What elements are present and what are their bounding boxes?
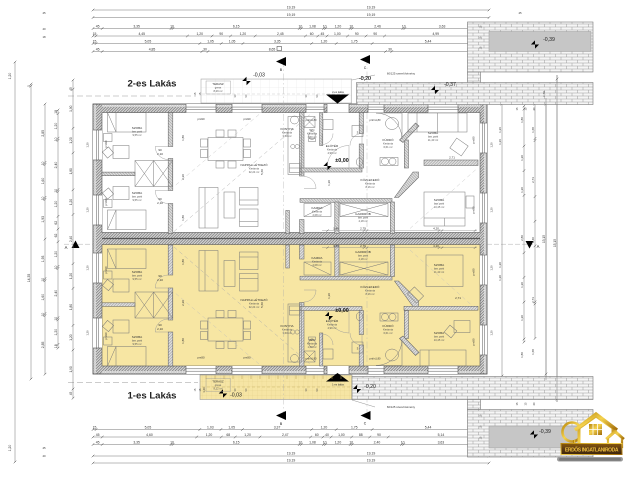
svg-text:2,10: 2,10 [157, 278, 163, 282]
svg-text:19,19: 19,19 [287, 452, 296, 456]
svg-text:Kerámia: Kerámia [307, 342, 318, 346]
svg-text:prs90: prs90 [244, 117, 251, 121]
svg-text:±0,00: ±0,00 [335, 158, 348, 164]
svg-text:prs90: prs90 [198, 356, 205, 360]
svg-text:13,15: 13,15 [542, 235, 546, 243]
svg-text:SZOBA: SZOBA [132, 126, 143, 130]
svg-text:5,60: 5,60 [260, 169, 264, 175]
svg-text:2,85: 2,85 [41, 342, 45, 349]
svg-text:3,37: 3,37 [274, 425, 281, 429]
svg-text:13,45 m²: 13,45 m² [434, 338, 445, 342]
svg-text:1,20: 1,20 [520, 282, 524, 288]
svg-text:19,19: 19,19 [287, 13, 296, 17]
svg-text:90: 90 [219, 32, 223, 36]
svg-text:lam.park: lam.park [434, 202, 445, 206]
svg-text:19,19: 19,19 [367, 13, 376, 17]
svg-text:11,43 m²: 11,43 m² [434, 270, 445, 274]
svg-text:1,20: 1,20 [244, 433, 251, 437]
svg-text:1,20: 1,20 [86, 207, 90, 213]
svg-text:1,20: 1,20 [86, 142, 90, 148]
svg-text:1,26: 1,26 [498, 139, 502, 145]
svg-text:1,20: 1,20 [202, 387, 206, 393]
svg-text:prs90: prs90 [104, 198, 108, 205]
svg-text:KAMRA: KAMRA [311, 256, 323, 260]
svg-text:SZOBA: SZOBA [132, 191, 143, 195]
svg-text:10: 10 [54, 317, 58, 321]
svg-text:SZOBA: SZOBA [434, 331, 445, 335]
svg-text:lam.park: lam.park [132, 339, 143, 343]
svg-text:6,61 m²: 6,61 m² [383, 331, 392, 335]
svg-text:±0,00: ±0,00 [335, 308, 348, 314]
svg-text:1,80: 1,80 [520, 352, 524, 358]
svg-text:1-es lakás: 1-es lakás [332, 383, 345, 387]
svg-text:8,22 m²: 8,22 m² [213, 387, 222, 391]
svg-text:Kerámia: Kerámia [383, 328, 394, 332]
svg-text:1,20: 1,20 [54, 329, 58, 336]
svg-text:45: 45 [518, 11, 522, 15]
svg-text:prs90: prs90 [472, 268, 476, 275]
svg-text:1,80: 1,80 [181, 338, 185, 344]
svg-text:prs90: prs90 [104, 266, 108, 273]
svg-text:1,80: 1,80 [69, 304, 73, 310]
svg-text:Kerámia: Kerámia [249, 167, 260, 171]
svg-text:60/125 szerelt kémény: 60/125 szerelt kémény [387, 405, 416, 409]
svg-text:2,08 m²: 2,08 m² [312, 263, 321, 267]
svg-text:18: 18 [54, 110, 58, 114]
svg-text:11,43 m²: 11,43 m² [428, 138, 439, 142]
svg-text:3,35: 3,35 [133, 24, 140, 28]
svg-text:1,68: 1,68 [531, 127, 535, 133]
svg-text:Kerámia: Kerámia [327, 148, 338, 152]
svg-text:4,20: 4,20 [433, 227, 439, 231]
svg-text:prt/m1,80: prt/m1,80 [370, 357, 382, 361]
svg-text:15,15: 15,15 [553, 239, 557, 247]
svg-text:10: 10 [41, 162, 45, 166]
svg-text:10: 10 [41, 313, 45, 317]
svg-text:2,40: 2,40 [54, 290, 58, 297]
svg-text:1,20: 1,20 [54, 251, 58, 258]
svg-text:45: 45 [96, 24, 100, 28]
svg-text:prs90: prs90 [472, 136, 476, 143]
svg-text:1,75: 1,75 [351, 425, 358, 429]
svg-text:10: 10 [323, 440, 327, 444]
svg-text:10: 10 [401, 440, 405, 444]
svg-text:5,60: 5,60 [260, 302, 264, 308]
svg-text:6,61 m²: 6,61 m² [383, 145, 392, 149]
svg-text:1,80: 1,80 [520, 117, 524, 123]
svg-text:1,68: 1,68 [531, 349, 535, 355]
svg-text:prt/m1,80: prt/m1,80 [370, 118, 382, 122]
svg-text:1,90: 1,90 [69, 105, 73, 111]
svg-text:4,85: 4,85 [149, 47, 156, 51]
svg-text:8,16 m²: 8,16 m² [365, 292, 374, 296]
svg-text:1,40: 1,40 [333, 244, 339, 248]
svg-text:62: 62 [54, 221, 58, 225]
svg-text:NAPPALI+ÉTKEZŐ: NAPPALI+ÉTKEZŐ [240, 297, 268, 302]
svg-text:90: 90 [373, 32, 377, 36]
svg-text:KÖZLEKEDŐ: KÖZLEKEDŐ [361, 177, 381, 182]
svg-text:-0,37: -0,37 [444, 82, 456, 88]
svg-text:1,60 m²: 1,60 m² [307, 135, 316, 139]
svg-text:4,60: 4,60 [146, 433, 153, 437]
svg-text:Kerámia: Kerámia [312, 260, 323, 264]
svg-text:3,60 m²: 3,60 m² [282, 331, 291, 335]
svg-text:10: 10 [170, 24, 174, 28]
svg-text:SZOBA: SZOBA [434, 198, 445, 202]
svg-text:2,45: 2,45 [277, 32, 284, 36]
svg-text:10: 10 [298, 24, 302, 28]
svg-text:1,80: 1,80 [181, 259, 185, 265]
svg-text:prs90: prs90 [472, 206, 476, 213]
svg-text:18: 18 [42, 35, 46, 39]
svg-text:1,75: 1,75 [351, 39, 358, 43]
svg-text:10: 10 [170, 440, 174, 444]
svg-text:60: 60 [315, 433, 319, 437]
svg-text:2,46: 2,46 [374, 24, 381, 28]
svg-text:19,19: 19,19 [287, 6, 296, 10]
svg-text:Kerámia: Kerámia [365, 289, 376, 293]
svg-text:1,90: 1,90 [69, 366, 73, 372]
svg-text:1,20: 1,20 [69, 137, 73, 143]
svg-text:1,20: 1,20 [498, 262, 502, 268]
svg-text:1,60 m²: 1,60 m² [307, 345, 316, 349]
svg-text:1,20: 1,20 [335, 440, 342, 444]
svg-text:Kerámia: Kerámia [312, 210, 323, 214]
svg-text:2,40: 2,40 [374, 440, 381, 444]
svg-text:1,03: 1,03 [207, 425, 214, 429]
svg-text:68: 68 [226, 433, 230, 437]
svg-text:ERDŐS INGATLANIRODA: ERDŐS INGATLANIRODA [565, 447, 619, 454]
svg-text:40: 40 [42, 27, 46, 31]
svg-text:lam.park: lam.park [132, 130, 143, 134]
svg-text:prs90: prs90 [472, 338, 476, 345]
svg-text:1,05: 1,05 [207, 39, 214, 43]
svg-text:2,40: 2,40 [69, 236, 73, 242]
svg-text:1,05: 1,05 [229, 39, 236, 43]
svg-text:2,71: 2,71 [449, 156, 455, 160]
svg-text:GARDRÓB: GARDRÓB [355, 249, 371, 254]
svg-text:18: 18 [54, 344, 58, 348]
svg-text:1,80: 1,80 [69, 168, 73, 174]
svg-text:WC: WC [309, 128, 315, 132]
svg-text:4,99 m²: 4,99 m² [327, 151, 336, 155]
svg-text:-0,39: -0,39 [543, 37, 555, 43]
svg-text:A: A [65, 245, 68, 250]
svg-text:-0,03: -0,03 [253, 73, 265, 79]
svg-text:10: 10 [402, 24, 406, 28]
svg-text:prs90: prs90 [244, 356, 251, 360]
svg-text:2,85: 2,85 [41, 130, 45, 137]
svg-text:1,20: 1,20 [8, 445, 12, 452]
svg-text:1,80: 1,80 [181, 135, 185, 141]
svg-text:4,20: 4,20 [433, 244, 439, 248]
svg-text:SZOBA: SZOBA [132, 335, 143, 339]
svg-text:2-es lakás: 2-es lakás [332, 90, 345, 94]
svg-text:10: 10 [323, 24, 327, 28]
svg-text:ELŐTÉR: ELŐTÉR [326, 143, 339, 148]
svg-text:15: 15 [93, 32, 97, 36]
svg-text:1,20: 1,20 [54, 123, 58, 130]
svg-text:6,15: 6,15 [233, 440, 240, 444]
svg-text:-0,20: -0,20 [364, 384, 376, 390]
svg-text:6,15: 6,15 [233, 24, 240, 28]
svg-text:1,66: 1,66 [542, 91, 546, 97]
svg-text:40: 40 [42, 454, 46, 458]
svg-text:1,20: 1,20 [69, 334, 73, 340]
svg-text:1,08: 1,08 [309, 24, 316, 28]
svg-text:5,05: 5,05 [145, 425, 152, 429]
svg-text:1-es Lakás: 1-es Lakás [127, 391, 176, 402]
svg-text:1,05: 1,05 [228, 425, 235, 429]
svg-text:9,55 m²: 9,55 m² [132, 198, 141, 202]
svg-text:NAPPALI+ÉTKEZŐ: NAPPALI+ÉTKEZŐ [240, 162, 268, 167]
svg-text:Kerámia: Kerámia [249, 302, 260, 306]
svg-text:2,10: 2,10 [157, 327, 163, 331]
svg-text:1,20: 1,20 [54, 201, 58, 208]
svg-text:2,71: 2,71 [455, 296, 461, 300]
svg-text:gress: gress [215, 383, 222, 387]
svg-text:Kerámia: Kerámia [365, 182, 376, 186]
svg-text:45: 45 [96, 47, 100, 51]
svg-text:1,20: 1,20 [8, 73, 12, 80]
svg-text:1,20: 1,20 [196, 32, 203, 36]
svg-text:2,20: 2,20 [181, 174, 185, 180]
svg-text:1,20: 1,20 [498, 275, 502, 281]
svg-text:1,20: 1,20 [335, 24, 342, 28]
svg-text:SZOBA: SZOBA [434, 263, 445, 267]
svg-text:15: 15 [93, 425, 97, 429]
svg-text:45: 45 [42, 11, 46, 15]
svg-text:5,05: 5,05 [145, 39, 152, 43]
svg-text:Kerámia: Kerámia [307, 132, 318, 136]
svg-text:30: 30 [388, 47, 392, 51]
svg-text:5,44: 5,44 [425, 425, 432, 429]
svg-text:1,20: 1,20 [86, 330, 90, 336]
svg-text:2,79: 2,79 [360, 227, 366, 231]
svg-text:30: 30 [203, 47, 207, 51]
svg-text:1,00: 1,00 [338, 433, 345, 437]
svg-text:1,20: 1,20 [206, 433, 213, 437]
svg-text:1,20: 1,20 [520, 155, 524, 161]
svg-text:KONYHA: KONYHA [280, 127, 294, 131]
svg-text:2-es Lakás: 2-es Lakás [127, 79, 176, 90]
svg-text:10: 10 [298, 440, 302, 444]
svg-text:1,20: 1,20 [327, 293, 331, 299]
svg-text:40: 40 [325, 433, 329, 437]
svg-text:1,20: 1,20 [327, 180, 331, 186]
svg-text:2,79: 2,79 [360, 244, 366, 248]
svg-text:4,18 m²: 4,18 m² [358, 219, 367, 223]
svg-text:-0,39: -0,39 [539, 429, 551, 435]
svg-text:B: B [280, 68, 282, 72]
svg-text:1,20: 1,20 [490, 207, 494, 213]
svg-text:2,40: 2,40 [54, 162, 58, 169]
svg-text:4,45: 4,45 [138, 32, 145, 36]
svg-text:-0,03: -0,03 [230, 393, 242, 399]
svg-text:prs90: prs90 [104, 332, 108, 339]
svg-text:90: 90 [355, 32, 359, 36]
svg-text:1,60: 1,60 [41, 294, 45, 301]
svg-text:4,18 m²: 4,18 m² [358, 257, 367, 261]
svg-text:2,47: 2,47 [282, 433, 289, 437]
svg-text:WC: WC [309, 338, 315, 342]
svg-text:90: 90 [377, 433, 381, 437]
svg-text:45: 45 [321, 32, 325, 36]
svg-text:10: 10 [54, 189, 58, 193]
svg-text:lam.park: lam.park [434, 335, 445, 339]
svg-text:prt/m1,80: prt/m1,80 [306, 118, 318, 122]
svg-text:10: 10 [54, 265, 58, 269]
svg-text:KÖZLEKEDŐ: KÖZLEKEDŐ [361, 284, 381, 289]
svg-text:8,16 m²: 8,16 m² [365, 185, 374, 189]
svg-text:1,20: 1,20 [69, 273, 73, 279]
svg-text:9,55 m²: 9,55 m² [132, 133, 141, 137]
svg-text:1,00: 1,00 [334, 32, 341, 36]
svg-text:10: 10 [349, 24, 353, 28]
svg-text:gress: gress [215, 86, 222, 90]
svg-text:1,80: 1,80 [181, 215, 185, 221]
svg-text:14,35: 14,35 [27, 274, 31, 283]
svg-text:15: 15 [93, 39, 97, 43]
svg-text:Kerámia: Kerámia [327, 323, 338, 327]
svg-text:1,26: 1,26 [498, 127, 502, 133]
svg-text:19,19: 19,19 [367, 459, 376, 463]
svg-text:1,20: 1,20 [321, 39, 328, 43]
svg-text:2,80: 2,80 [520, 235, 524, 241]
svg-text:Kerámia: Kerámia [383, 142, 394, 146]
svg-text:1,20: 1,20 [520, 187, 524, 193]
svg-text:10: 10 [41, 196, 45, 200]
svg-text:45: 45 [69, 392, 73, 396]
svg-text:10: 10 [41, 278, 45, 282]
svg-text:1,20: 1,20 [490, 265, 494, 271]
svg-text:2,73: 2,73 [531, 177, 535, 183]
svg-text:2,10: 2,10 [157, 201, 163, 205]
svg-text:5,44: 5,44 [425, 39, 432, 43]
svg-text:8,29 m²: 8,29 m² [213, 89, 222, 93]
svg-text:45: 45 [42, 446, 46, 450]
svg-text:13,45 m²: 13,45 m² [434, 205, 445, 209]
svg-text:FÜRDŐ: FÜRDŐ [383, 137, 395, 142]
svg-text:1,40: 1,40 [333, 227, 339, 231]
svg-text:9,55 m²: 9,55 m² [132, 277, 141, 281]
svg-text:TERASZ: TERASZ [212, 82, 224, 86]
svg-text:KONYHA: KONYHA [280, 324, 294, 328]
svg-text:SZOBA: SZOBA [428, 131, 439, 135]
svg-text:2,40: 2,40 [531, 237, 535, 243]
svg-text:45: 45 [96, 440, 100, 444]
svg-text:3,35: 3,35 [274, 39, 281, 43]
svg-text:1,20: 1,20 [321, 425, 328, 429]
svg-text:32,24 m²: 32,24 m² [249, 305, 260, 309]
svg-text:9,55 m²: 9,55 m² [132, 342, 141, 346]
svg-text:19,19: 19,19 [367, 6, 376, 10]
svg-text:1,20: 1,20 [490, 330, 494, 336]
svg-text:1,93: 1,93 [41, 216, 45, 223]
svg-text:2,10: 2,10 [157, 152, 163, 156]
svg-text:ELŐTÉR: ELŐTÉR [326, 318, 339, 323]
svg-text:lam.park: lam.park [434, 267, 445, 271]
svg-text:60/125 szerelt kémény: 60/125 szerelt kémény [387, 72, 416, 76]
svg-text:3,35: 3,35 [133, 440, 140, 444]
svg-text:lam.park: lam.park [428, 135, 439, 139]
svg-text:1,93: 1,93 [41, 255, 45, 262]
svg-text:3,63: 3,63 [439, 24, 446, 28]
svg-text:1,20: 1,20 [520, 315, 524, 321]
svg-text:19,19: 19,19 [367, 452, 376, 456]
svg-text:prs90: prs90 [104, 140, 108, 147]
svg-text:45: 45 [96, 433, 100, 437]
svg-text:45: 45 [69, 87, 73, 91]
svg-text:60: 60 [310, 32, 314, 36]
svg-text:0: 0 [27, 85, 31, 87]
svg-text:2,08 m²: 2,08 m² [312, 213, 321, 217]
svg-text:GARDRÓB: GARDRÓB [355, 211, 371, 216]
svg-text:1,08: 1,08 [309, 440, 316, 444]
svg-text:lam.park: lam.park [132, 195, 143, 199]
svg-text:32,24 m²: 32,24 m² [249, 170, 260, 174]
svg-text:4,99 m²: 4,99 m² [327, 326, 336, 330]
svg-text:-0,20: -0,20 [359, 76, 371, 82]
svg-text:1,20: 1,20 [240, 32, 247, 36]
svg-text:TERASZ: TERASZ [212, 380, 224, 384]
svg-text:prs90: prs90 [198, 117, 205, 121]
svg-text:10: 10 [54, 137, 58, 141]
svg-text:10: 10 [349, 440, 353, 444]
svg-text:1,20: 1,20 [69, 199, 73, 205]
svg-text:1,20: 1,20 [86, 265, 90, 271]
svg-text:A: A [537, 244, 540, 249]
svg-text:1,60: 1,60 [41, 178, 45, 185]
svg-text:1,20: 1,20 [490, 142, 494, 148]
svg-text:4,99: 4,99 [432, 32, 439, 36]
svg-text:5,14: 5,14 [438, 433, 445, 437]
svg-text:SZOBA: SZOBA [132, 270, 143, 274]
svg-text:88: 88 [359, 433, 363, 437]
svg-text:62: 62 [54, 233, 58, 237]
svg-text:FÜRDŐ: FÜRDŐ [383, 323, 395, 328]
svg-text:3,60 m²: 3,60 m² [282, 134, 291, 138]
svg-text:KAMRA: KAMRA [311, 206, 323, 210]
svg-text:19,19: 19,19 [287, 459, 296, 463]
svg-text:lam.park: lam.park [132, 274, 143, 278]
svg-text:2,20: 2,20 [181, 300, 185, 306]
svg-text:3,63: 3,63 [438, 440, 445, 444]
svg-text:2,73: 2,73 [531, 297, 535, 303]
svg-text:prt/m1,80: prt/m1,80 [306, 357, 318, 361]
svg-text:8,65: 8,65 [269, 47, 276, 51]
